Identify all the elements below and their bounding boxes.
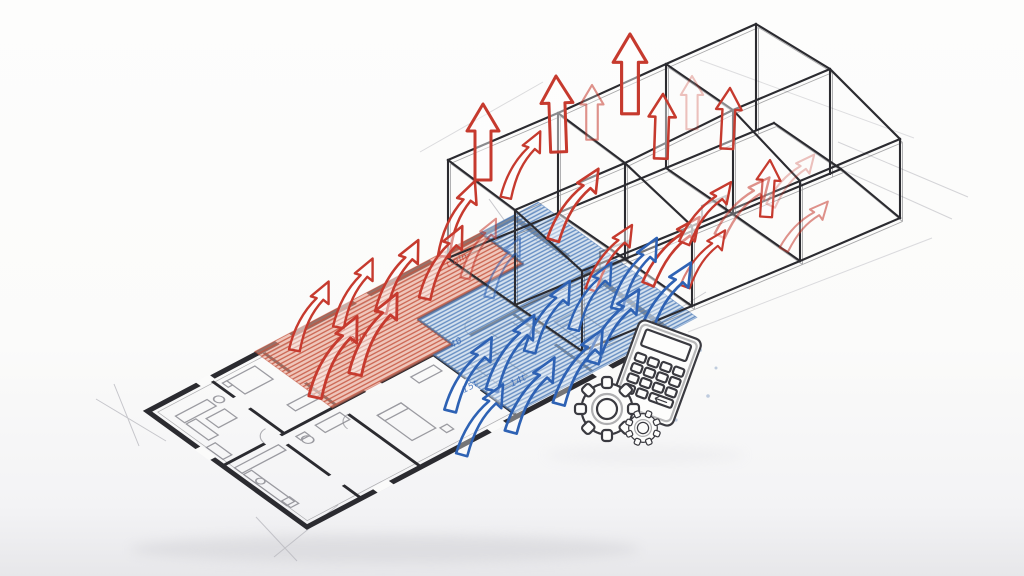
heat-arrow: [540, 75, 575, 152]
heat-arrow: [779, 195, 828, 257]
heat-arrow: [467, 104, 499, 180]
floor-plan: [141, 202, 703, 531]
heat-arrow: [681, 76, 703, 129]
sketch-canvas: t·ein θ·m 4θ 15t 14t: [0, 0, 1024, 576]
sketch-image: t·ein θ·m 4θ 15t 14t: [0, 0, 1024, 576]
